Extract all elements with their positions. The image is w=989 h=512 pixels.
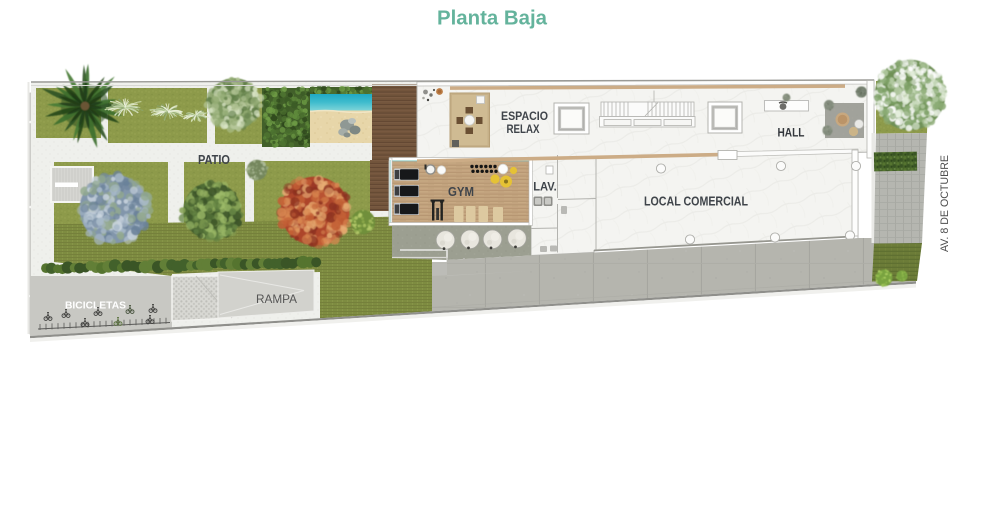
svg-text:GYM: GYM (448, 184, 474, 199)
svg-text:ESPACIO: ESPACIO (501, 111, 548, 123)
svg-text:Planta Baja: Planta Baja (437, 7, 548, 30)
svg-text:AV. 8 DE OCTUBRE: AV. 8 DE OCTUBRE (939, 155, 951, 252)
svg-text:RELAX: RELAX (507, 124, 540, 136)
svg-text:LAV.: LAV. (533, 182, 557, 194)
svg-text:BICICLETAS: BICICLETAS (65, 300, 126, 312)
svg-text:RAMPA: RAMPA (256, 292, 297, 306)
svg-text:HALL: HALL (778, 126, 805, 140)
svg-text:PATIO: PATIO (198, 153, 230, 167)
svg-text:LOCAL COMERCIAL: LOCAL COMERCIAL (644, 194, 748, 209)
